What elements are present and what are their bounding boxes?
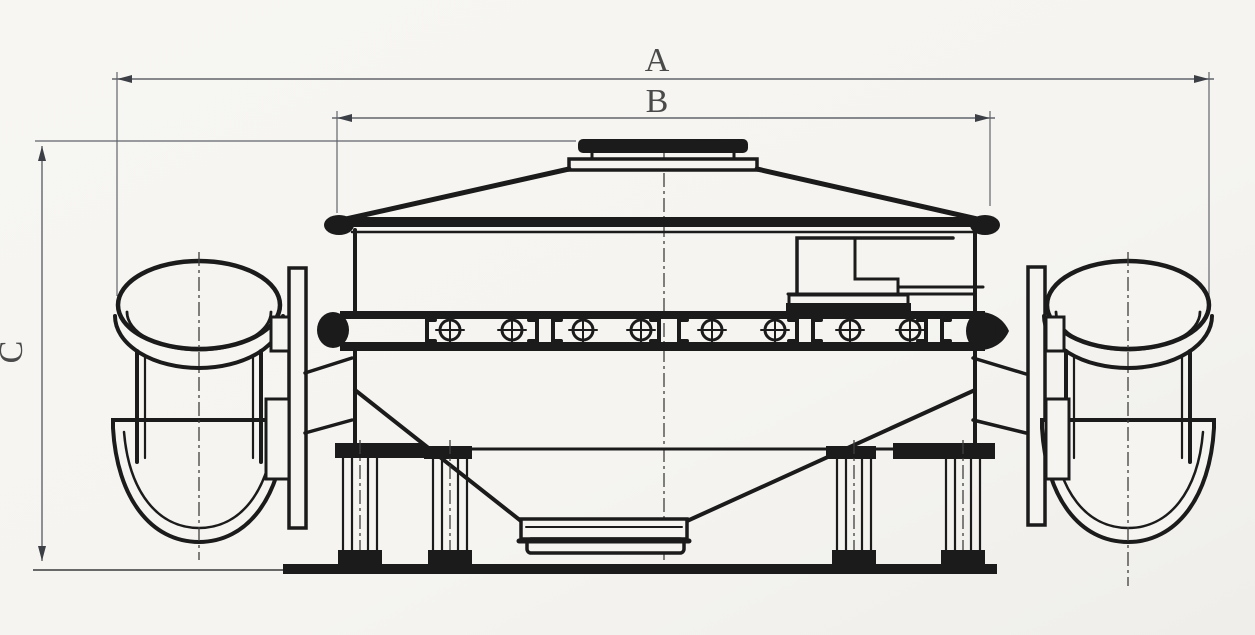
drum-left-clamp-upper [271, 317, 289, 351]
dimension-a-label: A [645, 42, 670, 79]
drum-right-clamp-upper [1046, 317, 1064, 351]
drum-right-clamp-lower [1046, 399, 1069, 479]
dimension-b-label: B [646, 83, 669, 120]
discharge-flange [519, 519, 689, 553]
dimension-c-label: C [0, 341, 30, 364]
drawing-sheet: A B C [0, 0, 1255, 635]
body-rim [324, 215, 1000, 235]
technical-drawing: A B C [0, 0, 1255, 635]
mount-plate-left [289, 268, 306, 528]
inlet-flange [569, 159, 757, 170]
ground-line [283, 564, 997, 574]
inlet-cap [578, 139, 748, 153]
mount-plate-right [1028, 267, 1045, 525]
drum-left-clamp-lower [266, 399, 289, 479]
